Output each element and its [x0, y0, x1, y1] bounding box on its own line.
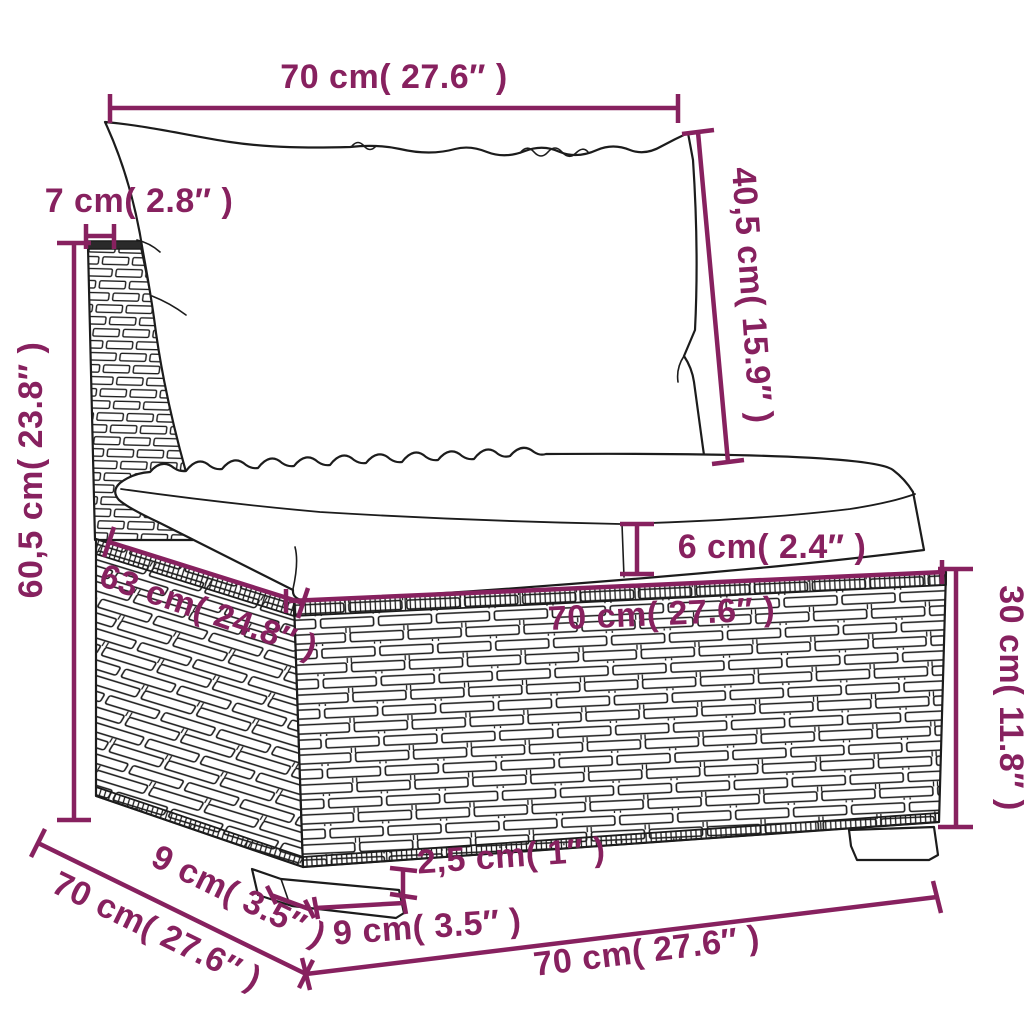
sofa-drawing: [86, 122, 946, 918]
dim-label-overall-height: 60,5 cm( 23.8″ ): [12, 342, 50, 599]
diagram-canvas: 70 cm( 27.6″ ) 7 cm( 2.8″ ) 40,5 cm( 15.…: [0, 0, 1024, 1024]
product-dimension-diagram: 70 cm( 27.6″ ) 7 cm( 2.8″ ) 40,5 cm( 15.…: [0, 0, 1024, 1024]
dim-back-cushion-width-line: [110, 94, 678, 123]
dim-label-seat-thickness: 6 cm( 2.4″ ): [678, 528, 867, 566]
dim-overall-height-line: [57, 243, 91, 820]
foot-front-right: [849, 827, 938, 860]
dim-label-back-cushion-height: 40,5 cm( 15.9″ ): [724, 166, 780, 425]
dim-label-back-cushion-width: 70 cm( 27.6″ ): [280, 58, 507, 96]
back-cushion: [105, 122, 705, 477]
dim-label-base-height: 30 cm( 11.8″ ): [992, 585, 1024, 811]
dim-label-back-post-width: 7 cm( 2.8″ ): [45, 182, 234, 220]
dim-label-width-overall: 70 cm( 27.6″ ): [531, 918, 761, 983]
